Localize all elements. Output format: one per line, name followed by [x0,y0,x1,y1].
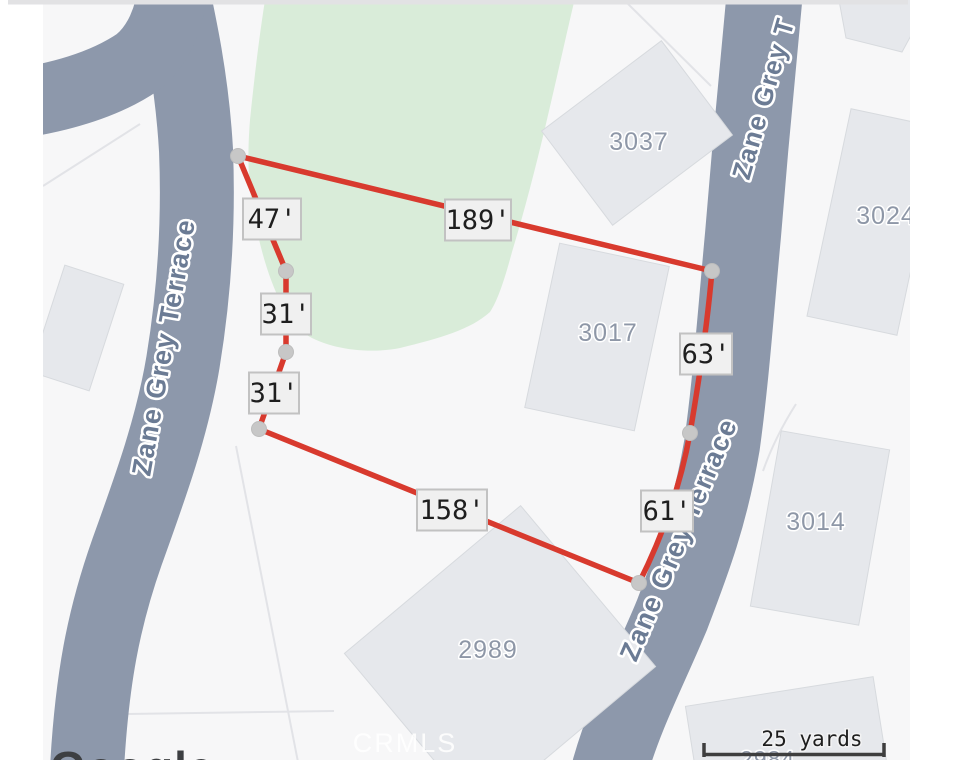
scale-bar-label: 25 yards [761,727,862,751]
boundary-vertex-dot [683,426,698,441]
crmls-watermark: CRMLS [353,728,458,758]
measurement-label-189ft: 189' [445,200,511,241]
svg-text:189': 189' [445,205,510,236]
svg-text:63': 63' [682,339,731,370]
svg-text:47': 47' [248,204,297,235]
google-logo: Google [50,742,214,760]
parcel-map-svg: Zane Grey Terrace Zane Grey T Zane Grey … [0,0,960,760]
boundary-vertex-dot [252,422,267,437]
svg-text:61': 61' [643,496,692,527]
house-number-3014: 3014 [786,508,846,536]
measurement-label-61ft: 61' [641,491,693,532]
svg-text:158': 158' [419,495,484,526]
boundary-vertex-dot [279,264,294,279]
boundary-vertex-dot [231,149,246,164]
svg-text:31': 31' [262,299,311,330]
measurement-label-31ft-upper: 31' [261,294,311,335]
top-edge-strip [8,0,908,5]
house-number-3024: 3024 [856,202,916,230]
measurement-label-47ft: 47' [243,199,301,240]
measurement-label-31ft-lower: 31' [249,373,299,414]
house-number-3037: 3037 [609,128,669,156]
svg-text:31': 31' [250,378,299,409]
house-number-3017: 3017 [578,319,638,347]
left-margin [0,0,43,760]
boundary-vertex-dot [705,264,720,279]
right-margin [910,0,960,760]
house-number-2989: 2989 [458,636,518,664]
map-canvas[interactable]: Zane Grey Terrace Zane Grey T Zane Grey … [0,0,960,760]
boundary-vertex-dot [279,345,294,360]
measurement-label-63ft: 63' [680,334,732,375]
measurement-label-158ft: 158' [417,490,487,531]
